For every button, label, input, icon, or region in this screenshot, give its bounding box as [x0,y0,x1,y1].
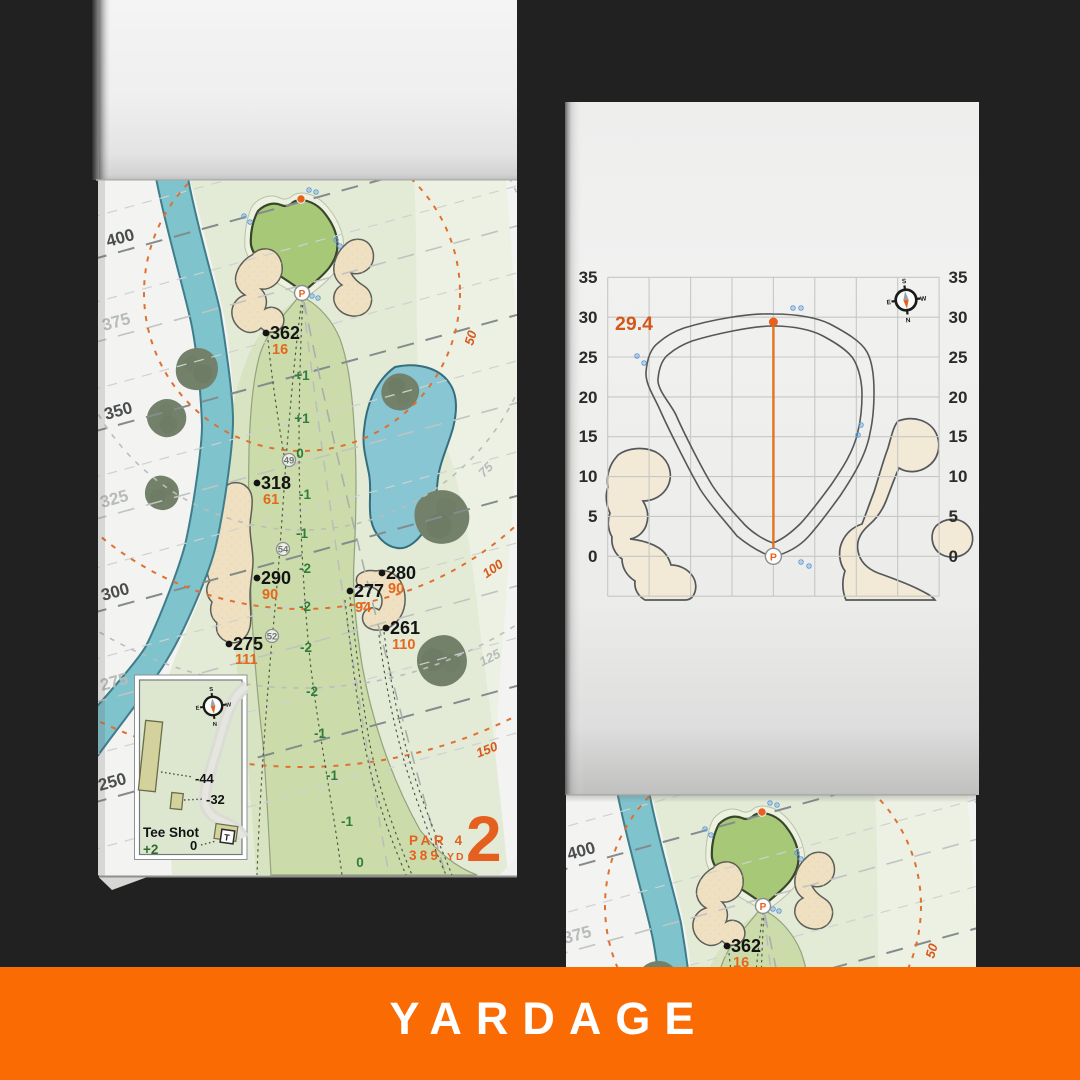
svg-text:30: 30 [949,308,968,327]
svg-text:5: 5 [949,507,958,526]
svg-text:29.4: 29.4 [615,313,653,335]
svg-text:P: P [770,552,777,564]
svg-text:20: 20 [579,388,598,407]
svg-text:0: 0 [588,547,597,566]
svg-text:35: 35 [949,268,968,287]
svg-text:30: 30 [579,308,598,327]
svg-text:35: 35 [579,268,598,287]
svg-text:15: 15 [579,427,598,446]
svg-text:15: 15 [949,427,968,446]
svg-text:25: 25 [949,348,968,367]
svg-text:20: 20 [949,388,968,407]
svg-text:5: 5 [588,507,597,526]
svg-text:10: 10 [579,467,598,486]
svg-text:25: 25 [579,348,598,367]
svg-text:10: 10 [949,467,968,486]
svg-text:0: 0 [949,547,958,566]
